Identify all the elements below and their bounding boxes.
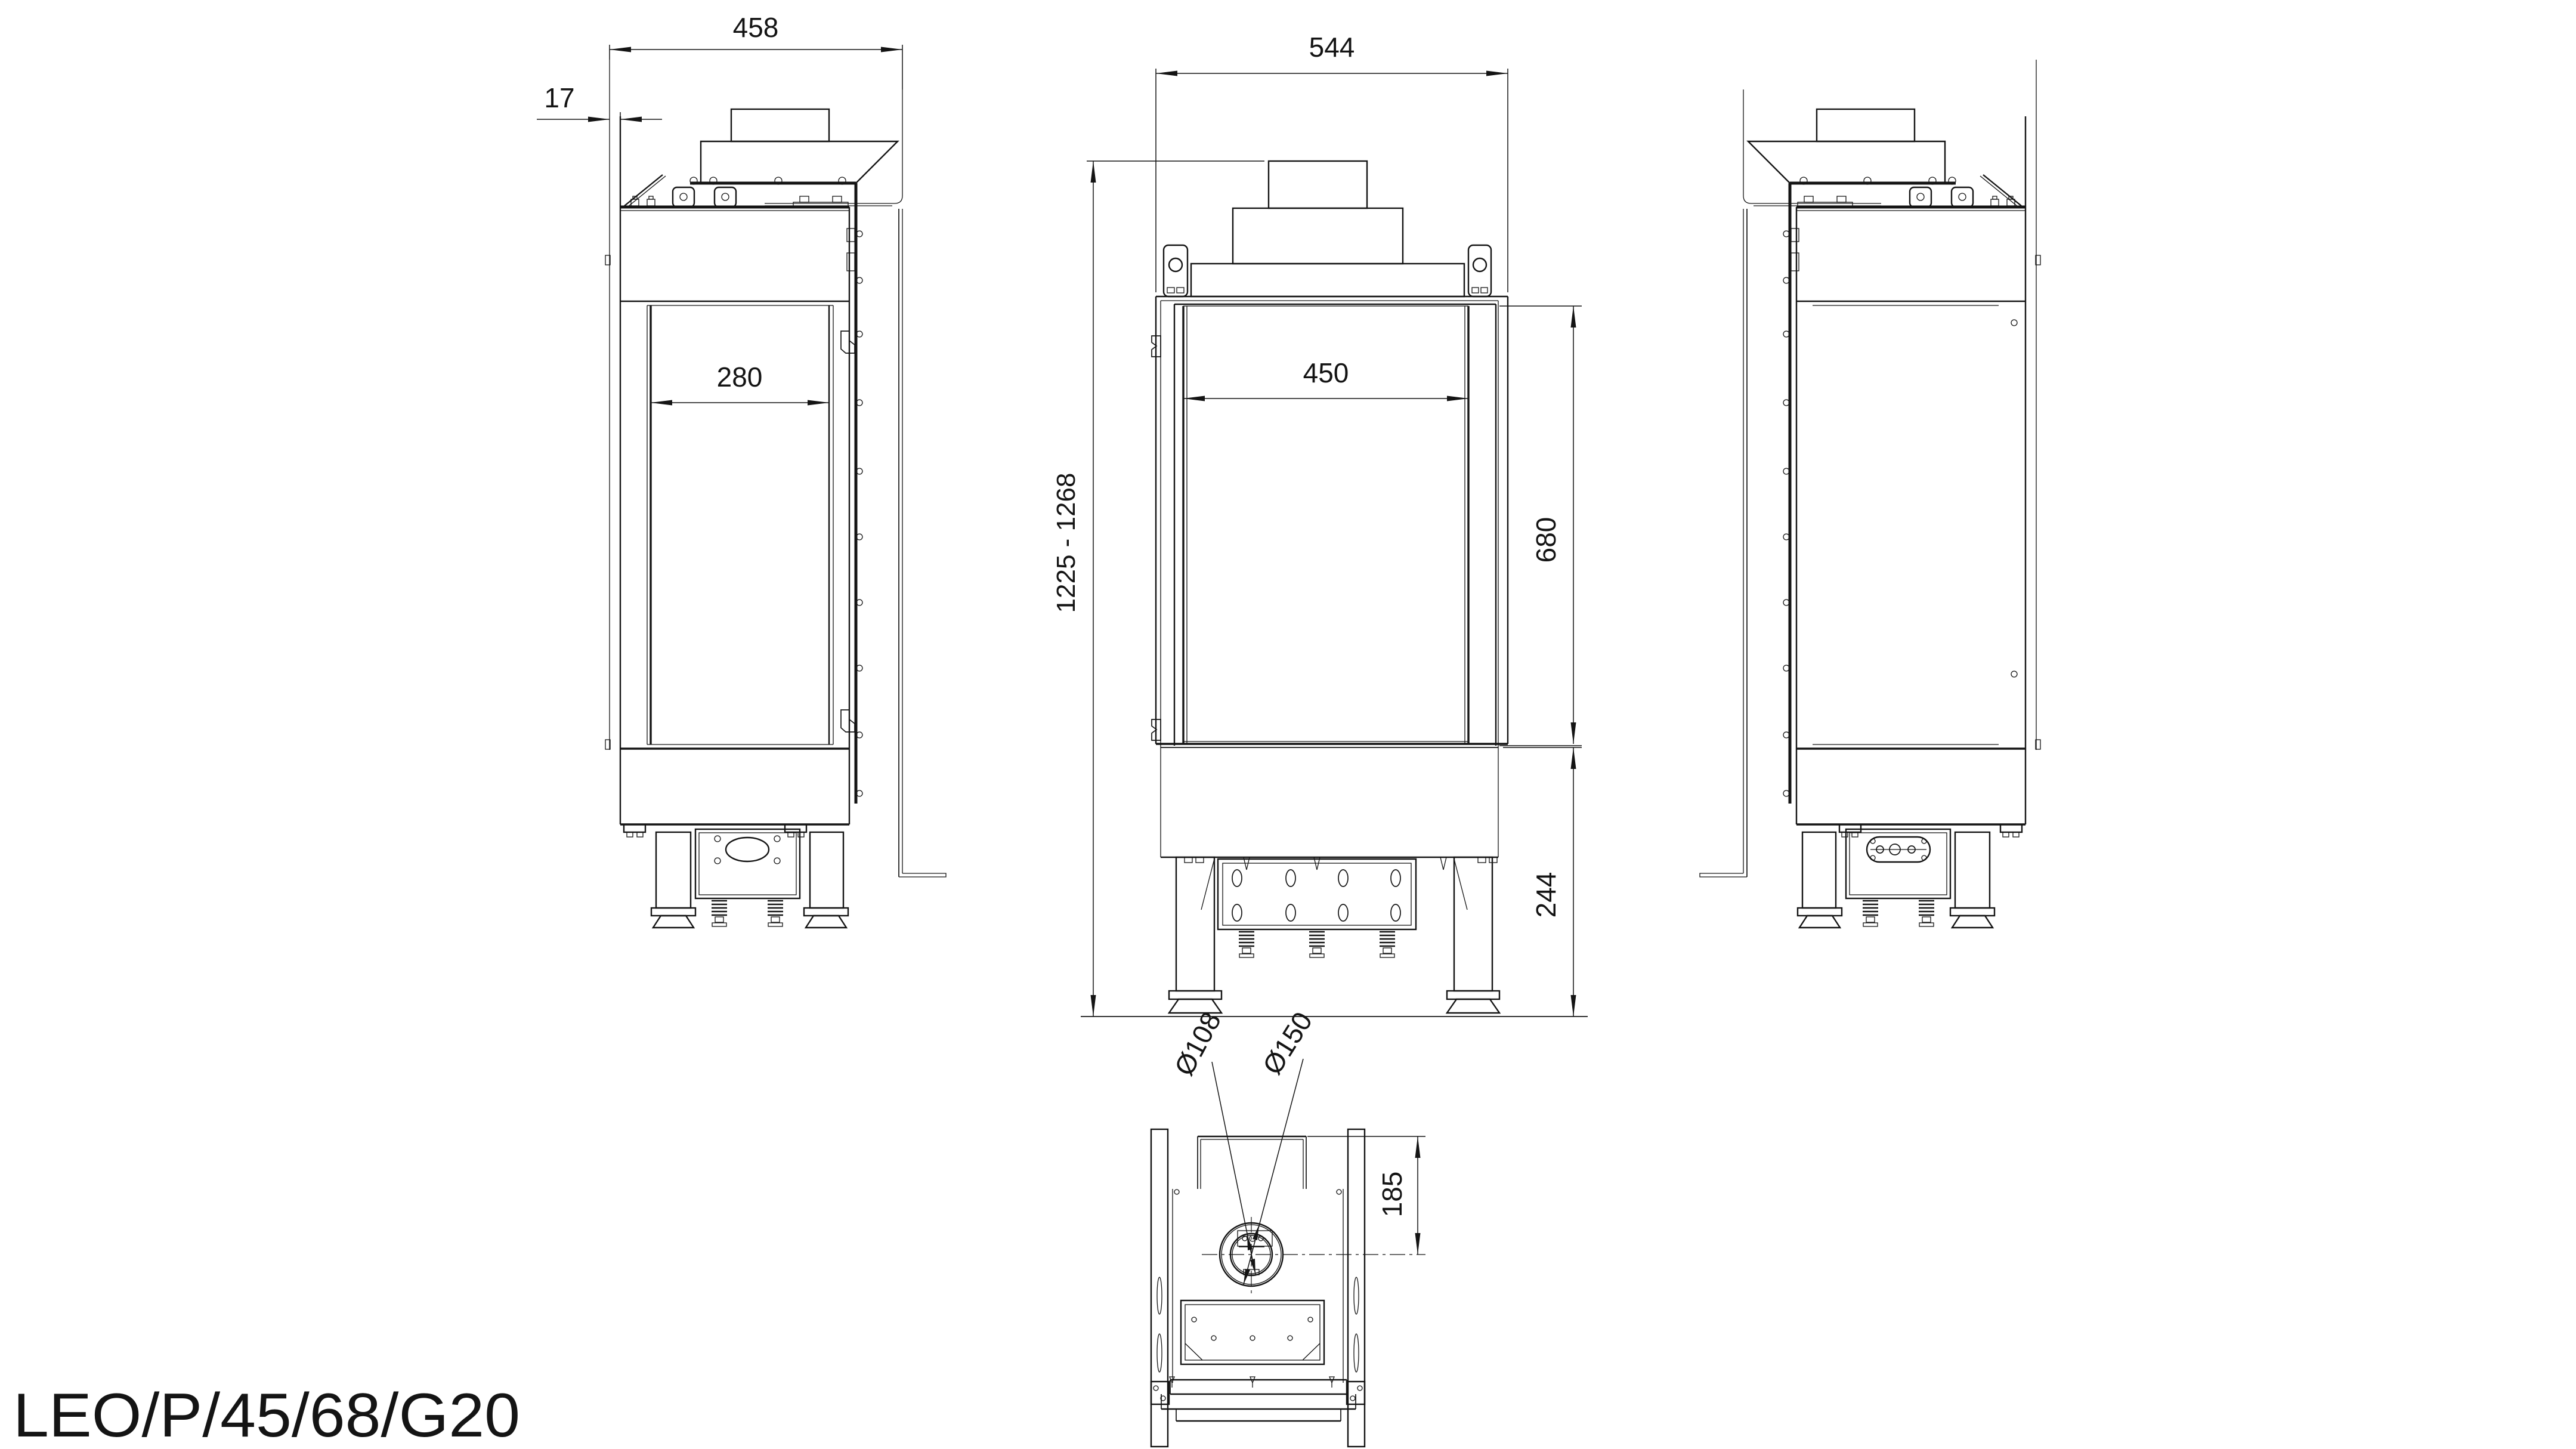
mount-bracket [1468, 245, 1491, 296]
dimension-side-glass-depth: 280 [651, 362, 829, 403]
glass-latch [841, 331, 855, 353]
dim-label-d108: Ø108 [1168, 1007, 1227, 1081]
plate-screws [1170, 1377, 1334, 1388]
dim-label-17: 17 [544, 82, 574, 113]
mount-bracket [1164, 245, 1188, 296]
dim-label-height-range: 1225 - 1268 [1052, 473, 1081, 613]
dim-label-d150: Ø150 [1257, 1006, 1319, 1080]
flue-collar [1233, 208, 1403, 264]
dimension-base-height: 244 [1503, 747, 1582, 1017]
side-view-right [1700, 60, 2040, 928]
dimension-overall-height: 1225 - 1268 [1052, 161, 1264, 1017]
dim-label-680: 680 [1530, 517, 1561, 563]
dim-label-185: 185 [1377, 1172, 1408, 1218]
side-view-left: 458 17 280 [537, 12, 946, 928]
dimension-flue-axis-offset: 185 [1307, 1136, 1425, 1255]
glass-latch [841, 710, 855, 732]
dimension-glass-width: 450 [1183, 357, 1468, 398]
panel-screw [2011, 671, 2017, 677]
panel-screw [2011, 320, 2017, 326]
dim-label-458: 458 [733, 12, 779, 43]
dimension-overall-depth: 458 [610, 12, 902, 89]
plan-view: Ø108 Ø150 185 [1151, 1006, 1425, 1447]
leg [1176, 857, 1214, 991]
dim-label-280: 280 [717, 362, 763, 393]
technical-drawing-canvas: 458 17 280 [0, 0, 2576, 1449]
dimension-front-lip-offset: 17 [537, 82, 662, 203]
leg [1454, 857, 1492, 991]
adjustable-foot [1169, 999, 1221, 1013]
firebox-frame [1181, 1300, 1324, 1364]
dim-label-544: 544 [1309, 32, 1355, 63]
gas-box-vent [726, 838, 769, 861]
spring-row [1239, 932, 1395, 957]
gas-regulator-plate [1867, 837, 1930, 862]
dimension-flue-inner-diameter: Ø108 [1168, 1007, 1255, 1274]
dimension-overall-width: 544 [1156, 32, 1508, 292]
model-designation: LEO/P/45/68/G20 [13, 1381, 520, 1449]
dim-label-450: 450 [1303, 357, 1349, 388]
dim-label-244: 244 [1530, 872, 1561, 918]
adjustable-foot [1447, 999, 1499, 1013]
front-view: 544 1225 - 1268 450 680 244 [1052, 32, 1588, 1017]
dimension-glass-height: 680 [1499, 306, 1582, 746]
hood-box [1191, 264, 1464, 296]
flue-stub [1269, 161, 1367, 208]
